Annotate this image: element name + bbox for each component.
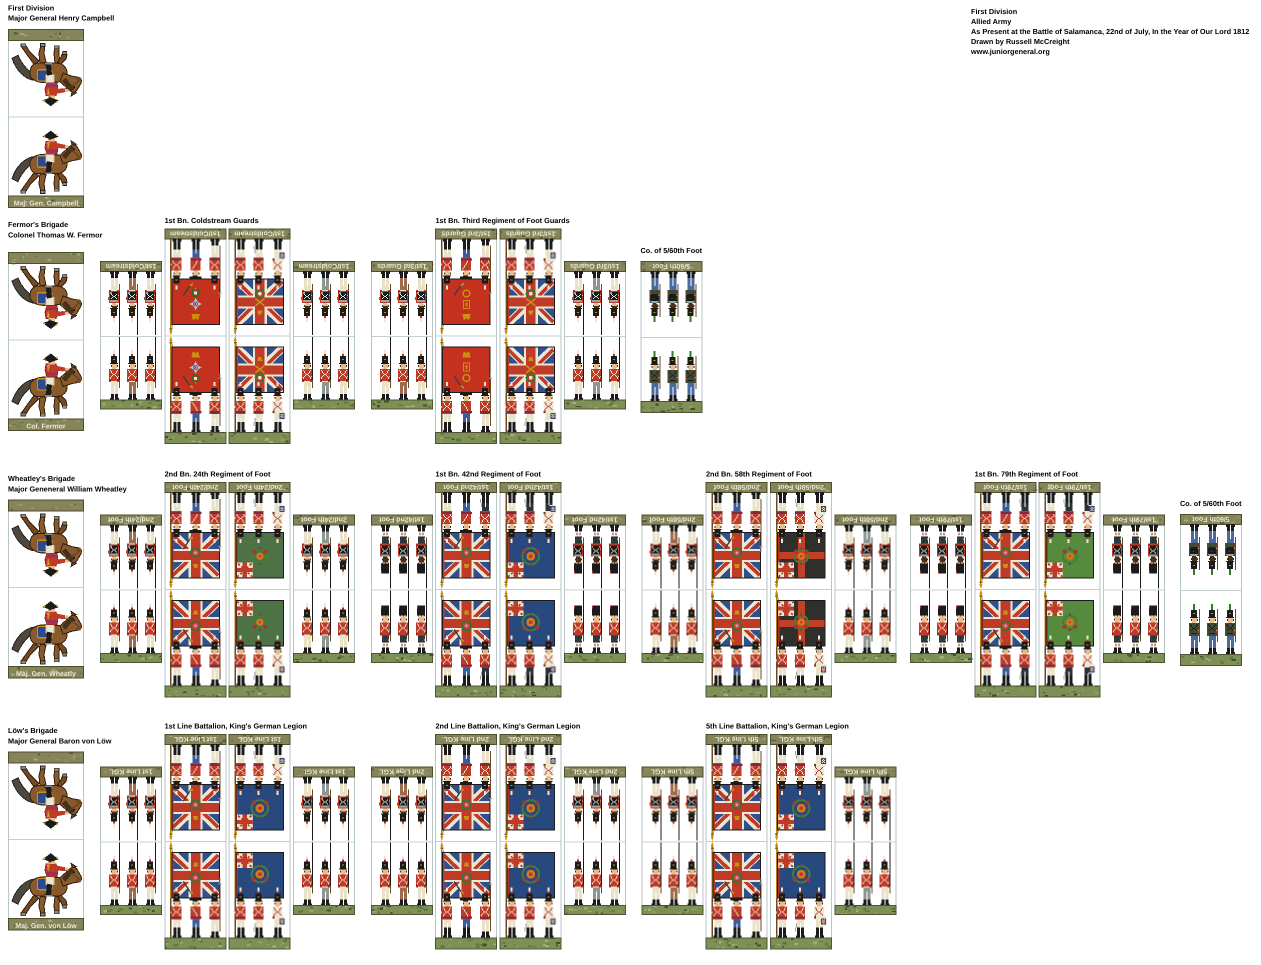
svg-text:2nd/24th Foot: 2nd/24th Foot (107, 516, 154, 524)
svg-text:www.juniorgeneral.org: www.juniorgeneral.org (970, 47, 1050, 56)
svg-text:2nd Bn. 58th Regiment of Foot: 2nd Bn. 58th Regiment of Foot (706, 469, 812, 478)
svg-text:Co. of 5/60th Foot: Co. of 5/60th Foot (641, 246, 703, 255)
svg-text:1st Line KGL: 1st Line KGL (173, 735, 217, 743)
svg-text:Maj. Gen. von Löw: Maj. Gen. von Löw (15, 922, 77, 930)
svg-text:2nd/58th Foot: 2nd/58th Foot (842, 516, 889, 524)
svg-text:1st Bn. 79th Regiment of Foot: 1st Bn. 79th Regiment of Foot (975, 469, 1079, 478)
svg-text:1st/79th Foot: 1st/79th Foot (1111, 516, 1155, 524)
svg-text:1st/Coldstream: 1st/Coldstream (170, 230, 221, 238)
svg-text:Allied Army: Allied Army (971, 17, 1012, 26)
svg-text:1st/3rd Guards: 1st/3rd Guards (377, 262, 427, 270)
svg-text:5/60th Foot: 5/60th Foot (652, 262, 690, 270)
svg-text:1st/3rd Guards: 1st/3rd Guards (506, 230, 556, 238)
svg-text:1st Bn. Coldstream Guards: 1st Bn. Coldstream Guards (165, 216, 259, 225)
svg-text:1st Line Battalion, King's Ger: 1st Line Battalion, King's German Legion (165, 721, 307, 730)
svg-text:2nd Line KGL: 2nd Line KGL (507, 735, 553, 743)
svg-text:Major Geneneral William Wheatl: Major Geneneral William Wheatley (8, 485, 128, 494)
svg-text:2nd Line KGL: 2nd Line KGL (571, 768, 617, 776)
svg-text:5th Line KGL: 5th Line KGL (714, 735, 758, 743)
svg-text:1st/79th Foot: 1st/79th Foot (1047, 483, 1091, 491)
svg-text:1st/Coldstream: 1st/Coldstream (234, 230, 285, 238)
svg-text:As Present at the Battle of Sa: As Present at the Battle of Salamanca, 2… (971, 27, 1249, 36)
svg-text:First Division: First Division (971, 7, 1017, 16)
svg-text:Co. of 5/60th Foot: Co. of 5/60th Foot (1180, 499, 1242, 508)
svg-text:5th Line KGL: 5th Line KGL (843, 768, 887, 776)
svg-text:2nd Line KGL: 2nd Line KGL (378, 768, 424, 776)
svg-text:2nd/58th Foot: 2nd/58th Foot (713, 483, 760, 491)
svg-text:5th Line KGL: 5th Line KGL (779, 735, 823, 743)
svg-text:1st Line KGL: 1st Line KGL (109, 768, 153, 776)
svg-text:5th Line Battalion, King's Ger: 5th Line Battalion, King's German Legion (706, 721, 849, 730)
svg-text:Col. Fermor: Col. Fermor (26, 423, 66, 431)
svg-text:Maj. Gen. Wheatly: Maj. Gen. Wheatly (16, 670, 76, 678)
svg-text:1st/42nd Foot: 1st/42nd Foot (507, 483, 553, 491)
svg-text:5th Line KGL: 5th Line KGL (650, 768, 694, 776)
svg-text:2nd/24th Foot: 2nd/24th Foot (300, 516, 347, 524)
svg-text:1st/79th Foot: 1st/79th Foot (983, 483, 1027, 491)
svg-text:1st/3rd Guards: 1st/3rd Guards (570, 262, 620, 270)
svg-text:2nd/58th Foot: 2nd/58th Foot (649, 516, 696, 524)
svg-text:1st/3rd Guards: 1st/3rd Guards (441, 230, 491, 238)
svg-text:Drawn by Russell McCreight: Drawn by Russell McCreight (971, 37, 1070, 46)
svg-text:1st/79th Foot: 1st/79th Foot (919, 516, 963, 524)
svg-text:Major General Henry Campbell: Major General Henry Campbell (8, 14, 114, 23)
svg-text:Fermor's Brigade: Fermor's Brigade (8, 220, 68, 229)
svg-text:2nd Line Battalion, King's Ger: 2nd Line Battalion, King's German Legion (436, 721, 581, 730)
svg-text:2nd/58th Foot: 2nd/58th Foot (777, 483, 824, 491)
svg-text:2nd Bn. 24th Regiment of Foot: 2nd Bn. 24th Regiment of Foot (165, 469, 271, 478)
svg-text:Löw's Brigade: Löw's Brigade (8, 726, 58, 735)
svg-text:2nd/24th Foot: 2nd/24th Foot (172, 483, 219, 491)
svg-text:Wheatley's Brigade: Wheatley's Brigade (8, 474, 75, 483)
svg-text:2nd/24th Foot: 2nd/24th Foot (236, 483, 283, 491)
svg-text:First Division: First Division (8, 4, 54, 13)
svg-text:1st Line KGL: 1st Line KGL (237, 735, 281, 743)
svg-text:1st/Coldstream: 1st/Coldstream (299, 262, 350, 270)
svg-text:1st Line KGL: 1st Line KGL (302, 768, 346, 776)
svg-text:Colonel Thomas W. Fermor: Colonel Thomas W. Fermor (8, 231, 103, 240)
svg-text:2nd Line KGL: 2nd Line KGL (443, 735, 489, 743)
svg-text:Major General Baron von Löw: Major General Baron von Löw (8, 737, 112, 746)
svg-text:1st/Coldstream: 1st/Coldstream (106, 262, 157, 270)
svg-text:1st/42nd Foot: 1st/42nd Foot (443, 483, 489, 491)
svg-text:Maj. Gen. Campbell: Maj. Gen. Campbell (14, 200, 79, 208)
svg-text:1st/42nd Foot: 1st/42nd Foot (378, 516, 424, 524)
svg-text:1st/42nd Foot: 1st/42nd Foot (571, 516, 617, 524)
svg-text:1st Bn. Third Regiment of Foot: 1st Bn. Third Regiment of Foot Guards (436, 216, 570, 225)
svg-text:1st Bn. 42nd Regiment of Foot: 1st Bn. 42nd Regiment of Foot (436, 469, 542, 478)
svg-text:5/60th Foot: 5/60th Foot (1192, 515, 1230, 523)
